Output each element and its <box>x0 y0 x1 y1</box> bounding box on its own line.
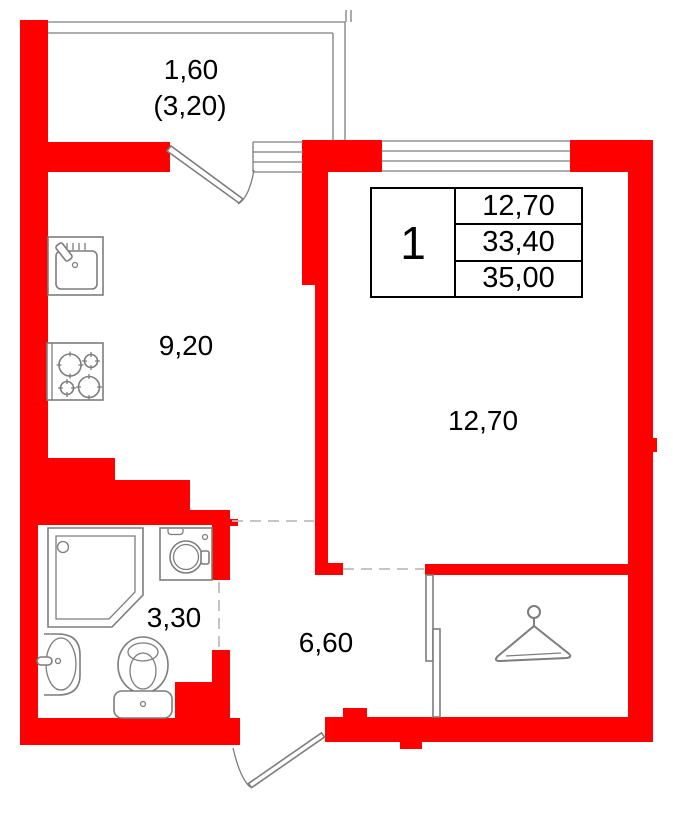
stove-icon <box>47 343 103 400</box>
floor-plan: 1,60 (3,20) 9,20 12,70 3,30 6,60 1 12,70… <box>0 0 673 818</box>
rooms-count-cell: 1 <box>372 189 456 296</box>
sliding-door-icon <box>426 575 440 717</box>
washing-machine-icon <box>160 528 212 580</box>
kitchen-area-label: 9,20 <box>159 332 214 360</box>
balcony-area-label: 1,60 <box>164 56 219 84</box>
washbasin-icon <box>37 634 80 695</box>
balcony-door-icon <box>167 146 254 204</box>
apartment-info-table: 1 12,70 33,40 35,00 <box>370 187 583 298</box>
balcony-window-icon <box>253 142 303 172</box>
hallway-area-label: 6,60 <box>299 629 354 657</box>
clothes-hanger-icon <box>496 606 570 661</box>
bathroom-area-label: 3,30 <box>147 604 202 632</box>
living-area-label: 12,70 <box>448 407 518 435</box>
areas-column: 12,70 33,40 35,00 <box>456 189 581 296</box>
living-area-cell: 12,70 <box>456 189 581 225</box>
living-space-cell: 33,40 <box>456 225 581 261</box>
kitchen-sink-icon <box>48 237 103 295</box>
balcony-area-full-label: (3,20) <box>153 92 226 120</box>
entrance-door-icon <box>233 733 325 788</box>
shower-cabin-icon <box>48 528 143 627</box>
total-area-cell: 35,00 <box>456 262 581 296</box>
toilet-icon <box>114 637 172 718</box>
living-room-window-icon <box>382 141 570 171</box>
plan-linework <box>0 0 673 818</box>
